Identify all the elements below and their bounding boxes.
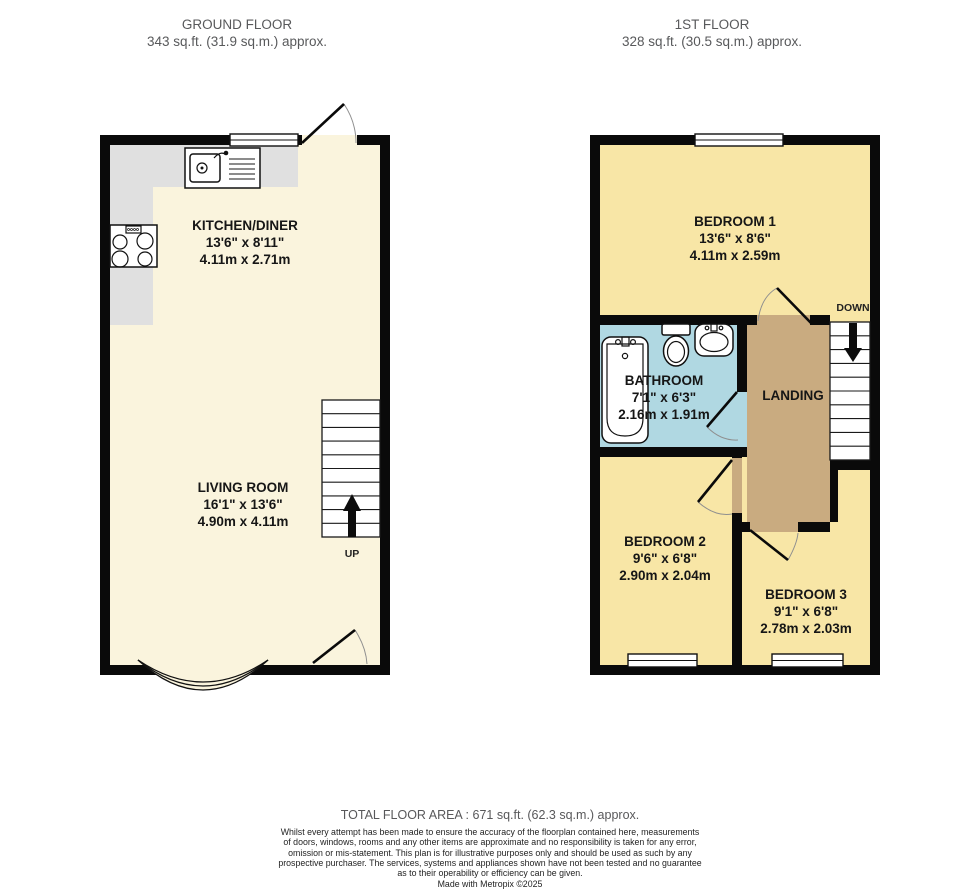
- svg-text:13'6" x 8'6": 13'6" x 8'6": [699, 231, 771, 246]
- svg-text:KITCHEN/DINER: KITCHEN/DINER: [192, 218, 298, 233]
- svg-text:7'1" x 6'3": 7'1" x 6'3": [632, 390, 696, 405]
- svg-text:13'6" x 8'11": 13'6" x 8'11": [206, 235, 285, 250]
- bedroom3-window: [772, 654, 843, 667]
- bedroom3-label: BEDROOM 3 9'1" x 6'8" 2.78m x 2.03m: [760, 587, 852, 636]
- ground-floor-area: 343 sq.ft. (31.9 sq.m.) approx.: [87, 33, 387, 50]
- footer: TOTAL FLOOR AREA : 671 sq.ft. (62.3 sq.m…: [0, 808, 980, 889]
- first-floor-plan: DOWN: [580, 90, 920, 730]
- disclaimer: Whilst every attempt has been made to en…: [0, 827, 980, 878]
- bedroom3-door-gap: [750, 522, 798, 532]
- disclaimer-line: Whilst every attempt has been made to en…: [0, 827, 980, 837]
- bathroom-label: BATHROOM 7'1" x 6'3" 2.16m x 1.91m: [618, 373, 710, 422]
- up-arrow-icon: [348, 509, 356, 537]
- bedroom2-window: [628, 654, 697, 667]
- down-arrow-icon: [849, 323, 857, 350]
- svg-text:4.90m x 4.11m: 4.90m x 4.11m: [198, 514, 289, 529]
- landing-label: LANDING: [762, 388, 824, 403]
- svg-text:2.90m x 2.04m: 2.90m x 2.04m: [619, 568, 711, 583]
- bedroom2-door-gap: [732, 458, 742, 513]
- room-landing: [747, 325, 830, 522]
- svg-text:9'1" x 6'8": 9'1" x 6'8": [774, 604, 838, 619]
- bathroom-door-gap: [737, 392, 747, 447]
- total-floor-area: TOTAL FLOOR AREA : 671 sq.ft. (62.3 sq.m…: [0, 808, 980, 822]
- bedroom2-label: BEDROOM 2 9'6" x 6'8" 2.90m x 2.04m: [619, 534, 711, 583]
- svg-text:BEDROOM 2: BEDROOM 2: [624, 534, 706, 549]
- svg-text:BEDROOM 3: BEDROOM 3: [765, 587, 847, 602]
- svg-text:BATHROOM: BATHROOM: [625, 373, 704, 388]
- kitchen-window: [230, 134, 298, 146]
- disclaimer-line: omission or mis-statement. This plan is …: [0, 848, 980, 858]
- stairs-up: [322, 400, 380, 537]
- svg-text:LIVING ROOM: LIVING ROOM: [198, 480, 289, 495]
- hob-icon: [110, 225, 157, 267]
- disclaimer-line: as to their operability or efficiency ca…: [0, 868, 980, 878]
- bedroom1-window: [695, 134, 783, 146]
- down-label: DOWN: [836, 302, 869, 314]
- disclaimer-line: of doors, windows, rooms and any other i…: [0, 837, 980, 847]
- svg-text:4.11m x 2.71m: 4.11m x 2.71m: [200, 252, 291, 267]
- sink-icon: [185, 148, 260, 188]
- stairs-down: [830, 322, 870, 460]
- first-floor-title: 1ST FLOOR: [562, 16, 862, 33]
- back-door: [302, 104, 357, 145]
- svg-text:16'1" x 13'6": 16'1" x 13'6": [203, 497, 282, 512]
- svg-text:4.11m x 2.59m: 4.11m x 2.59m: [690, 248, 781, 263]
- first-floor-area: 328 sq.ft. (30.5 sq.m.) approx.: [562, 33, 862, 50]
- ground-floor-plan: UP KITCHEN/DINER 13'6" x 8'11" 4.11m x 2…: [90, 90, 430, 730]
- toilet-icon: [662, 324, 690, 366]
- ground-floor-title: GROUND FLOOR: [87, 16, 387, 33]
- credit-line: Made with Metropix ©2025: [0, 879, 980, 889]
- svg-text:2.16m x 1.91m: 2.16m x 1.91m: [618, 407, 710, 422]
- svg-text:BEDROOM 1: BEDROOM 1: [694, 214, 776, 229]
- kitchen-diner-label: KITCHEN/DINER 13'6" x 8'11" 4.11m x 2.71…: [192, 218, 298, 267]
- living-room-label: LIVING ROOM 16'1" x 13'6" 4.90m x 4.11m: [198, 480, 289, 529]
- disclaimer-line: prospective purchaser. The services, sys…: [0, 858, 980, 868]
- ground-floor-header: GROUND FLOOR 343 sq.ft. (31.9 sq.m.) app…: [87, 16, 387, 50]
- up-label: UP: [345, 548, 360, 560]
- bedroom1-label: BEDROOM 1 13'6" x 8'6" 4.11m x 2.59m: [690, 214, 781, 263]
- bay-window: [138, 655, 268, 690]
- svg-text:9'6" x 6'8": 9'6" x 6'8": [633, 551, 697, 566]
- basin-icon: [695, 324, 733, 356]
- bedroom1-door-gap: [757, 315, 810, 325]
- first-floor-header: 1ST FLOOR 328 sq.ft. (30.5 sq.m.) approx…: [562, 16, 862, 50]
- svg-text:2.78m x 2.03m: 2.78m x 2.03m: [760, 621, 852, 636]
